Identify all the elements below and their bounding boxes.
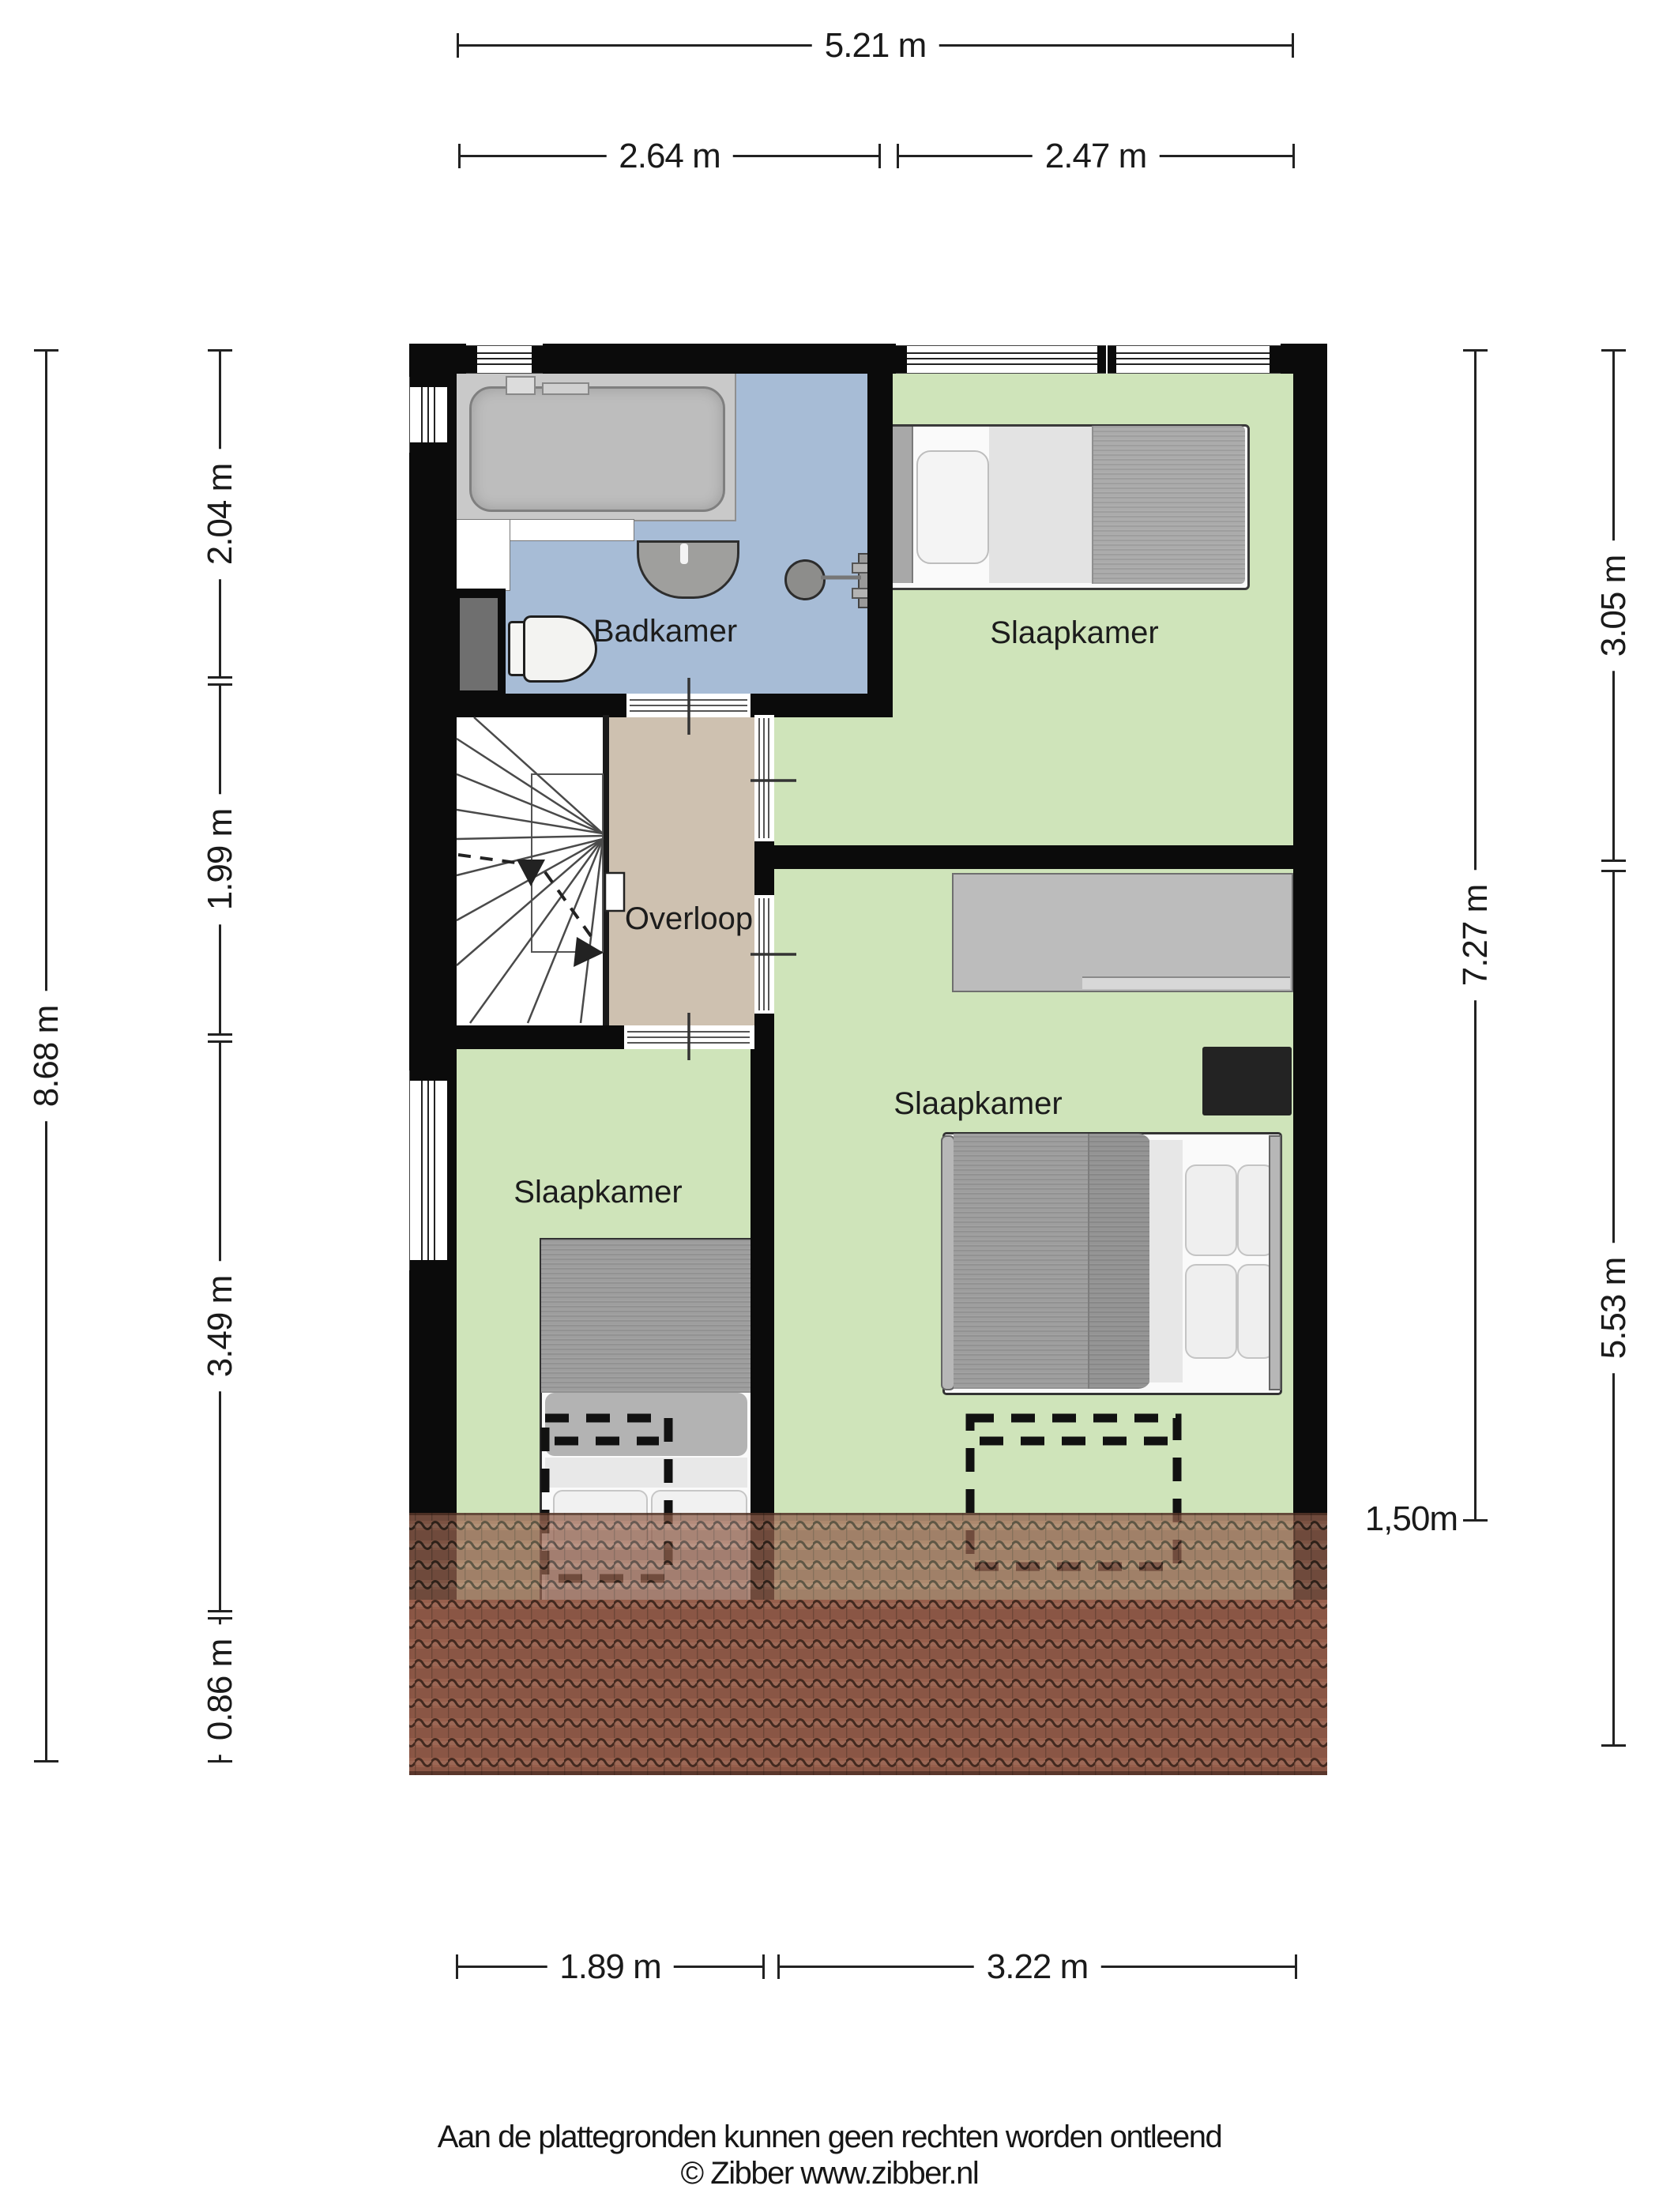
footer-credit: © Zibber www.zibber.nl <box>0 2156 1659 2191</box>
dimension-label: 1.99 m <box>199 795 242 925</box>
dimension-right-seg2: 5.53 m <box>1601 871 1626 1746</box>
room-label-bedroom-top: Slaapkamer <box>948 615 1201 651</box>
dimension-label: 2.04 m <box>199 449 242 579</box>
plan-linework <box>0 0 1659 2212</box>
dimension-bottom-right: 3.22 m <box>778 1954 1296 1979</box>
dimension-left-seg3: 3.49 m <box>208 1041 232 1612</box>
dimension-top-right: 2.47 m <box>897 144 1294 168</box>
dimension-label: 3.49 m <box>199 1262 242 1392</box>
dimension-label: 2.64 m <box>606 135 733 178</box>
roof-height-label: 1,50m <box>1296 1499 1458 1539</box>
dimension-label: 2.47 m <box>1033 135 1160 178</box>
roof <box>409 1513 1327 1775</box>
dimension-top-total: 5.21 m <box>457 33 1293 58</box>
dimension-left-seg1: 2.04 m <box>208 350 232 678</box>
dimension-bottom-left: 1.89 m <box>457 1954 764 1979</box>
dimension-label: 0.86 m <box>199 1625 242 1755</box>
dimension-label: 3.05 m <box>1593 540 1635 671</box>
room-label-landing: Overloop <box>562 901 815 937</box>
room-label-bathroom: Badkamer <box>539 613 792 649</box>
dimension-label: 8.68 m <box>25 991 68 1121</box>
dimension-label: 1.89 m <box>547 1946 674 1988</box>
footer-disclaimer: Aan de plattegronden kunnen geen rechten… <box>0 2120 1659 2155</box>
room-label-bedroom-right: Slaapkamer <box>852 1085 1104 1122</box>
dimension-right-seg1: 3.05 m <box>1601 350 1626 861</box>
door-leaf-lines <box>689 678 796 1060</box>
dimension-left-seg2: 1.99 m <box>208 684 232 1035</box>
dimension-top-left: 2.64 m <box>459 144 880 168</box>
dimension-label: 5.21 m <box>812 24 939 67</box>
dimension-label: 7.27 m <box>1454 871 1497 1001</box>
dimension-left-total: 8.68 m <box>34 350 58 1762</box>
room-label-bedroom-left: Slaapkamer <box>472 1174 724 1210</box>
dimension-label: 5.53 m <box>1593 1243 1635 1374</box>
floorplan-page: Badkamer Slaapkamer Overloop Slaapkamer … <box>0 0 1659 2212</box>
dimension-left-seg4: 0.86 m <box>208 1618 232 1762</box>
dimension-label: 3.22 m <box>974 1946 1101 1988</box>
dimension-right-inner: 7.27 m <box>1463 350 1488 1521</box>
